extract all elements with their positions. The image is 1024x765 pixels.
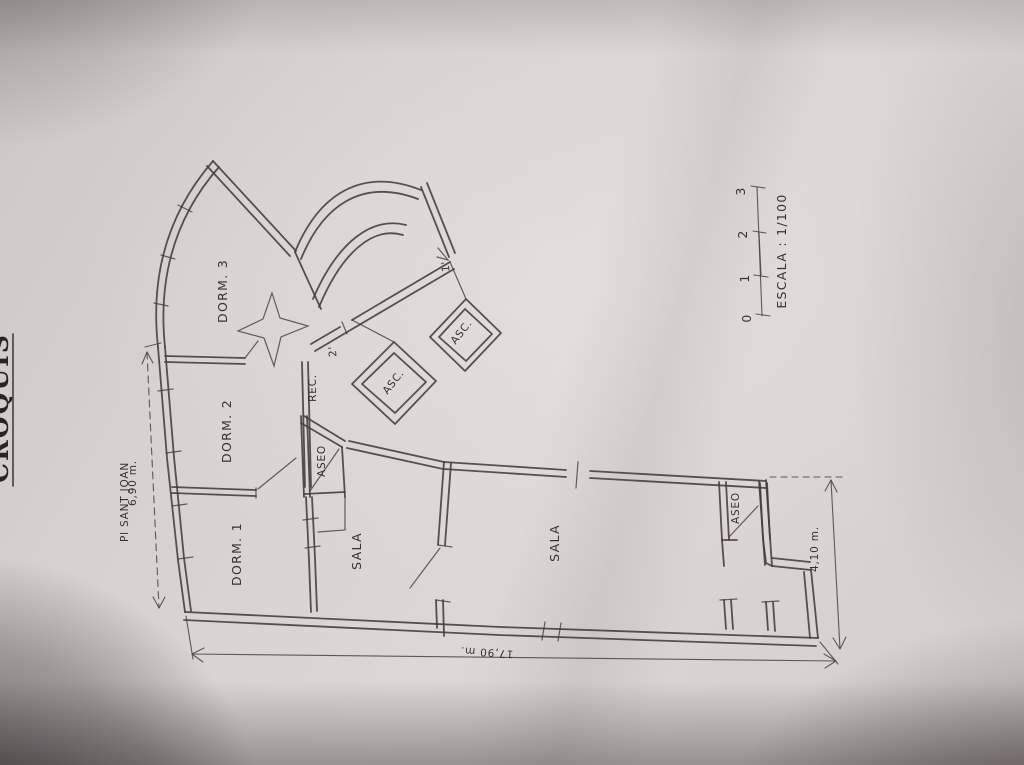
aseo-right-room [719,482,779,631]
room-label-asc-lower: ASC. [380,368,407,397]
room-label-aseo-left: ASEO [316,445,328,477]
room-label-dorm2: DORM. 2 [219,399,234,463]
croquis-title: CROQUIS [0,333,14,486]
room-label-dorm3: DORM. 3 [215,259,230,323]
wall-bottom [184,612,818,646]
wall-dorm2-top [165,341,258,364]
dimension-bottom-label: 17,90 m. [460,644,514,660]
wall-facade-arc [154,161,219,347]
entry-mark-1: 1' [440,260,453,272]
room-label-sala-left: SALA [349,532,364,570]
scale-tick-1: 1 [737,273,752,282]
entry-mark-2: 2' [327,345,340,357]
dimension-bottom: 17,90 m. [186,616,838,668]
wall-sala-top [444,462,766,488]
north-star-symbol [238,293,308,366]
room-label-dorm1: DORM. 1 [229,522,244,586]
room-labels: DORM. 3 DORM. 2 DORM. 1 SALA SALA REC. A… [215,259,742,586]
wall-left-facade [158,347,193,612]
wall-dorm-divider [172,458,296,498]
scale-bar: 3 2 1 0 ESCALA : 1/100 [733,186,789,323]
elevator-asc-upper [430,262,501,371]
scale-bar-label: ESCALA : 1/100 [774,193,789,308]
wall-entry-chord [311,262,454,351]
croquis-title-text: CROQUIS [0,333,14,483]
wall-diagonal-top [207,161,296,256]
wall-corridor [347,441,444,469]
scale-tick-2: 2 [735,229,750,238]
dimension-right-label: 4,10 m. [809,526,821,572]
scale-tick-3: 3 [733,186,748,195]
wall-sala-divider [410,462,452,636]
dimension-left: 6,90 m. [127,343,165,608]
balcony-stair-arcs [295,182,455,309]
room-label-rec: REC. [307,374,319,402]
scale-tick-0: 0 [739,313,754,322]
floor-plan-drawing: CROQUIS [0,0,1024,765]
photographed-floor-plan-sketch: CROQUIS [0,0,1024,765]
room-label-aseo-right: ASEO [730,492,742,524]
street-label: Pl SANT JOAN [119,462,131,542]
room-label-sala-right: SALA [547,524,562,562]
